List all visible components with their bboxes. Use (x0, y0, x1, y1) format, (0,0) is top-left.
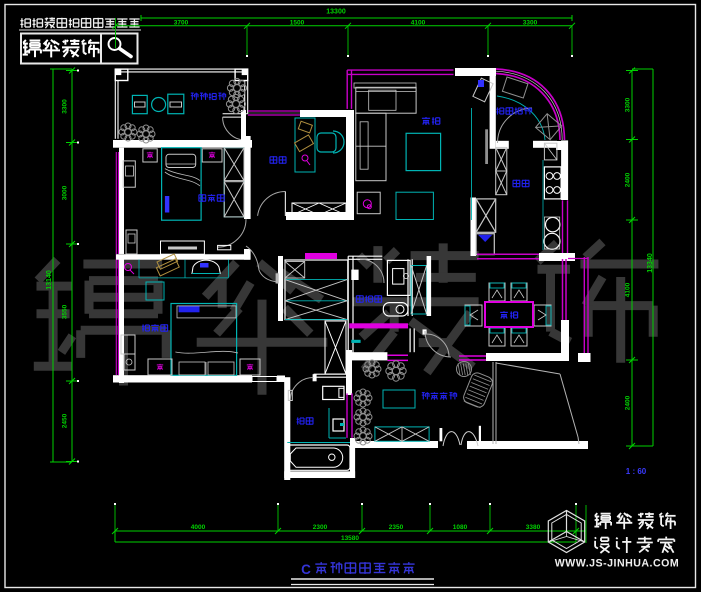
svg-text:4000: 4000 (191, 524, 206, 531)
svg-text:13140: 13140 (46, 270, 53, 290)
svg-text:C: C (301, 562, 311, 577)
svg-text:4100: 4100 (625, 282, 632, 297)
svg-text:2400: 2400 (625, 395, 632, 410)
svg-text:2350: 2350 (389, 524, 404, 531)
svg-text:3380: 3380 (526, 524, 541, 531)
svg-text:3300: 3300 (523, 20, 538, 27)
svg-text:4100: 4100 (411, 20, 426, 27)
svg-text:1080: 1080 (453, 524, 468, 531)
svg-text:3700: 3700 (174, 20, 189, 27)
svg-text:WWW.JS-JINHUA.COM: WWW.JS-JINHUA.COM (555, 558, 679, 570)
svg-text:3000: 3000 (62, 185, 69, 200)
svg-text:2400: 2400 (625, 172, 632, 187)
svg-text:2300: 2300 (313, 524, 328, 531)
svg-text:13340: 13340 (647, 253, 654, 273)
svg-text:3550: 3550 (62, 304, 69, 319)
svg-text:13300: 13300 (326, 9, 346, 16)
svg-text:1 : 60: 1 : 60 (626, 467, 647, 476)
svg-text:3300: 3300 (62, 99, 69, 114)
svg-text:1500: 1500 (290, 20, 305, 27)
svg-text:13580: 13580 (341, 535, 359, 542)
svg-text:2450: 2450 (62, 413, 69, 428)
svg-text:3300: 3300 (625, 97, 632, 112)
